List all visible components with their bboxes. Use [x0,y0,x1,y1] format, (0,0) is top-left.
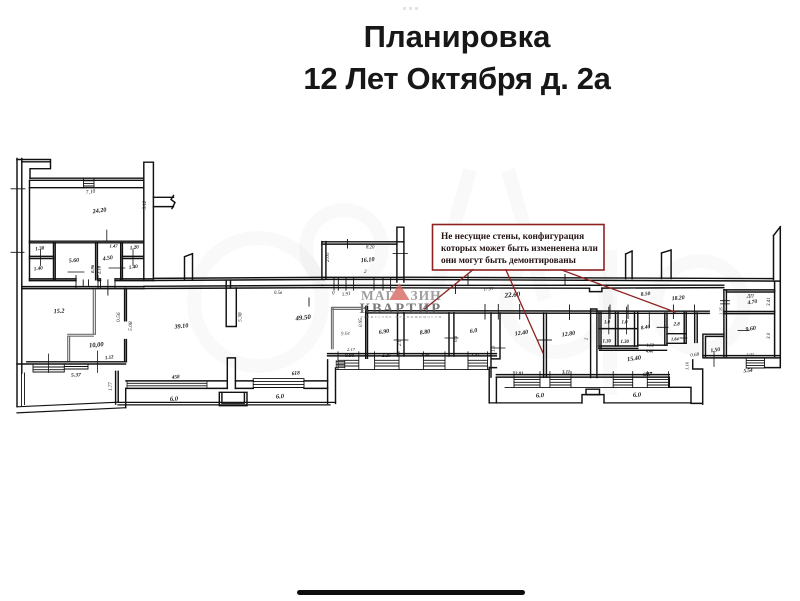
svg-text:Не несущие стены, конфигурация: Не несущие стены, конфигурация [441,231,584,242]
svg-text:0.95: 0.95 [359,318,364,327]
svg-text:1.0: 1.0 [604,321,611,326]
svg-text:1.77: 1.77 [109,382,114,391]
svg-text:0.96: 0.96 [90,264,95,273]
svg-text:49.50: 49.50 [294,314,312,323]
svg-text:417: 417 [644,373,653,378]
svg-text:2.17: 2.17 [347,347,356,352]
svg-text:8.40: 8.40 [640,324,650,331]
svg-text:4.50: 4.50 [101,255,113,263]
svg-text:3.0: 3.0 [767,332,772,339]
svg-text:1.52: 1.52 [647,342,654,347]
svg-text:24.20: 24.20 [91,206,107,215]
svg-text:12.80: 12.80 [561,331,575,339]
svg-text:0.90: 0.90 [345,353,354,359]
svg-text:7.10: 7.10 [85,189,96,196]
svg-text:2.47: 2.47 [470,354,480,359]
svg-text:1.30: 1.30 [35,245,45,252]
svg-text:1.12: 1.12 [105,355,115,361]
svg-text:1.30: 1.30 [621,340,630,345]
svg-text:1.16: 1.16 [685,361,690,370]
svg-text:1.40: 1.40 [128,264,138,271]
svg-text:0: 0 [332,292,335,297]
svg-text:618: 618 [292,370,301,377]
svg-text:2.6: 2.6 [398,339,403,346]
svg-text:18.20: 18.20 [671,295,685,302]
svg-text:3.48: 3.48 [420,354,430,359]
svg-text:2.05: 2.05 [325,252,331,262]
svg-text:6.0: 6.0 [469,328,477,335]
svg-text:6.0: 6.0 [633,392,642,399]
svg-text:2.18: 2.18 [97,265,102,275]
svg-text:2.8: 2.8 [673,323,681,328]
svg-text:8.50: 8.50 [641,291,651,298]
svg-text:1.84: 1.84 [671,337,679,342]
svg-text:6.0: 6.0 [276,393,285,400]
svg-text:0.56: 0.56 [116,312,122,322]
svg-text:которых может быть измененена: которых может быть измененена или [441,243,599,254]
svg-text:2.20: 2.20 [381,354,391,359]
svg-text:1.91: 1.91 [342,292,351,298]
svg-text:6.0: 6.0 [170,396,179,403]
svg-text:39.10: 39.10 [173,322,189,331]
svg-text:1.0: 1.0 [492,345,497,352]
svg-text:4.70: 4.70 [746,299,758,306]
svg-text:16.10: 16.10 [360,256,374,264]
svg-text:3.41: 3.41 [767,297,772,306]
svg-text:2.01: 2.01 [746,352,754,357]
svg-text:1.50: 1.50 [710,347,721,354]
svg-text:агентство недвижимости: агентство недвижимости [361,314,443,319]
svg-text:6.90: 6.90 [378,329,389,336]
svg-text:они могут быть демонтированы: они могут быть демонтированы [441,255,577,266]
svg-text:8.20: 8.20 [366,246,375,251]
svg-text:6.0: 6.0 [536,392,545,399]
svg-text:9.6е: 9.6е [341,330,351,337]
svg-text:1.30: 1.30 [603,340,612,345]
svg-text:5.54: 5.54 [743,368,753,375]
svg-text:1.40: 1.40 [33,265,43,272]
svg-text:2.01: 2.01 [514,372,523,377]
svg-text:5.08: 5.08 [128,321,134,331]
svg-text:0.5в: 0.5в [274,291,282,296]
svg-text:17.31: 17.31 [483,286,494,292]
svg-text:5.38: 5.38 [238,312,244,322]
svg-text:1.35: 1.35 [719,306,724,315]
svg-text:1.47: 1.47 [110,243,119,248]
svg-text:458: 458 [171,374,181,381]
svg-text:8.80: 8.80 [419,329,430,336]
svg-text:1.0: 1.0 [622,321,629,326]
svg-text:9.60: 9.60 [745,326,756,333]
svg-text:5.37: 5.37 [71,373,81,379]
svg-text:15.2: 15.2 [54,308,65,316]
svg-text:3.12: 3.12 [143,200,148,209]
svg-text:1.20: 1.20 [129,244,139,251]
svg-text:3.11: 3.11 [561,370,570,375]
svg-text:0.68: 0.68 [690,353,700,359]
svg-text:4.40: 4.40 [645,349,654,354]
svg-text:5.60: 5.60 [69,258,80,265]
svg-text:0.6: 0.6 [454,335,459,342]
svg-text:10,00: 10,00 [89,341,105,349]
svg-text:15.40: 15.40 [627,354,642,363]
